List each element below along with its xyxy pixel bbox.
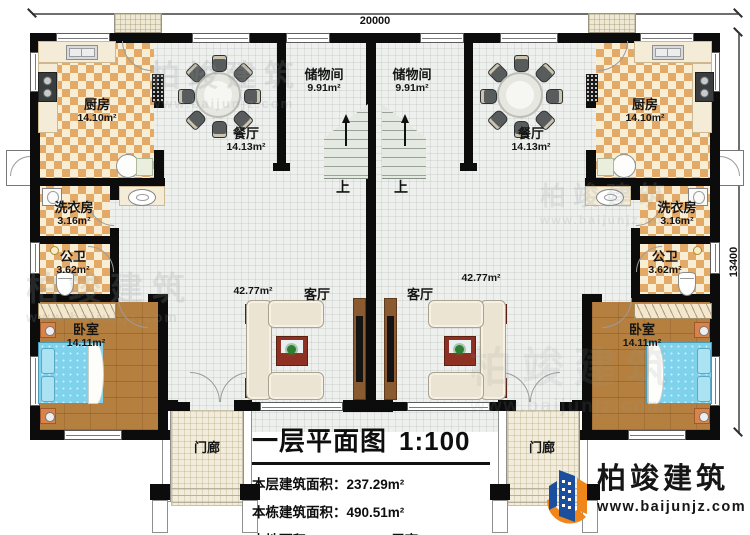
dining-table	[497, 72, 543, 118]
wall-bedroom-side-left	[158, 294, 168, 430]
wall-kitchen-bottom-right	[585, 178, 720, 186]
kitchen-appliance	[597, 158, 614, 176]
dimension-line-right	[738, 34, 740, 434]
ceiling-lamp	[693, 246, 702, 255]
kitchen-sink	[652, 45, 684, 60]
wall-bedroom-bottom-left	[30, 430, 64, 440]
nightstand	[694, 322, 710, 338]
wall-hall-left	[110, 186, 119, 200]
wall-bath-bedroom-right	[632, 294, 720, 302]
wall-center-base	[343, 400, 393, 412]
wall-bedroom-bottom-right	[580, 430, 628, 440]
stairs-up-arrow	[345, 118, 347, 146]
wall-bedroom-bottom-right	[686, 430, 720, 440]
room-label-bathroom-right: 公卫 3.62m²	[648, 250, 681, 276]
kitchen-table	[612, 154, 636, 178]
dining-table	[195, 72, 241, 118]
wall-kitchen-dining-right	[586, 150, 596, 186]
plant	[455, 345, 464, 354]
footprint-line: 占地面积：214.97m²层高：3.6m	[252, 529, 490, 535]
room-label-bedroom-left: 卧室 14.11m²	[67, 323, 106, 349]
window	[260, 402, 343, 411]
room-label-storage-left: 储物间 9.91m²	[304, 68, 343, 94]
dining-chair	[244, 89, 261, 104]
porch-column-right	[490, 484, 510, 500]
room-label-bedroom-right: 卧室 14.11m²	[623, 323, 662, 349]
pillow	[697, 376, 711, 402]
wall-kitchen-bottom-left	[30, 178, 165, 186]
dining-chair	[480, 89, 497, 104]
wall-bedroom-side-right	[582, 294, 592, 430]
sofa	[428, 300, 484, 328]
wall-laundry-bath-left	[30, 236, 110, 244]
porch-pillar-right	[492, 500, 508, 533]
planter-box-left	[114, 13, 162, 33]
wash-basin	[128, 189, 156, 206]
blanket	[648, 344, 664, 404]
wall-laundry-bath-right	[640, 236, 720, 244]
wall-hall-right	[631, 186, 640, 200]
kitchen-sink	[66, 45, 98, 60]
stove	[695, 72, 714, 102]
tv	[356, 316, 363, 382]
company-logo: 柏竣建筑 www.baijunjz.com	[545, 464, 746, 528]
dining-chair	[546, 89, 563, 104]
stove	[38, 72, 57, 102]
plan-title-text: 一层平面图	[252, 421, 387, 458]
blanket	[88, 344, 104, 404]
nightstand	[40, 322, 56, 338]
wall-living-front-right	[393, 402, 407, 411]
dining-chair	[212, 55, 227, 72]
room-label-bathroom-left: 公卫 3.62m²	[56, 250, 89, 276]
nightstand	[40, 408, 56, 424]
room-label-living-right: 客厅	[407, 288, 433, 303]
room-label-laundry-right: 洗衣房 3.16m²	[657, 201, 696, 227]
plant	[287, 345, 296, 354]
dimension-width-value: 20000	[360, 15, 391, 27]
dining-chair	[178, 89, 195, 104]
room-label-laundry-left: 洗衣房 3.16m²	[54, 201, 93, 227]
sofa	[268, 300, 324, 328]
kitchen-appliance	[136, 158, 153, 176]
building-area-line: 本栋建筑面积：490.51m²	[252, 501, 490, 521]
porch-steps-left	[171, 488, 243, 506]
room-area-living-right: 42.77m²	[461, 272, 500, 284]
porch-column-left	[150, 484, 170, 500]
wardrobe	[634, 303, 712, 319]
wall-storage-left-cap	[273, 163, 290, 171]
wall-party-center	[366, 33, 376, 402]
window	[30, 242, 40, 274]
wall-bath-bedroom-left	[30, 294, 118, 302]
room-label-kitchen-left: 厨房 14.10m²	[77, 98, 116, 124]
stairs-up-label: 上	[336, 177, 350, 197]
fridge	[586, 74, 598, 102]
wall-storage-left	[277, 41, 286, 163]
window	[286, 33, 330, 43]
plan-scale: 1:100	[399, 426, 471, 457]
dining-chair	[212, 121, 227, 138]
window	[628, 430, 686, 440]
floor-area-line: 本层建筑面积：237.29m²	[252, 473, 490, 493]
tv	[387, 316, 394, 382]
porch-pillar-left	[152, 500, 168, 533]
wall-storage-right-cap	[460, 163, 477, 171]
stairs-up-arrow	[404, 118, 406, 146]
floor-plan-canvas: 20000 13400	[0, 0, 750, 535]
window	[420, 33, 464, 43]
nightstand	[694, 408, 710, 424]
pillow	[41, 376, 55, 402]
dimension-height-value: 13400	[728, 247, 740, 278]
room-label-living-left: 客厅	[304, 288, 330, 303]
wall-kitchen-dining-left	[154, 150, 164, 186]
room-label-kitchen-right: 厨房 14.10m²	[625, 98, 664, 124]
company-logo-icon	[545, 464, 591, 528]
planter-box-right	[588, 13, 636, 33]
pillow	[697, 348, 711, 374]
company-name: 柏竣建筑	[597, 464, 746, 496]
room-label-dining-right: 餐厅 14.13m²	[511, 127, 550, 153]
title-block: 一层平面图 1:100 本层建筑面积：237.29m² 本栋建筑面积：490.5…	[252, 421, 490, 535]
dining-chair	[514, 55, 529, 72]
window	[500, 33, 558, 43]
pillow	[41, 348, 55, 374]
company-website: www.baijunjz.com	[597, 499, 746, 515]
window	[192, 33, 250, 43]
window	[407, 402, 490, 411]
room-label-dining-left: 餐厅 14.13m²	[226, 127, 265, 153]
room-label-storage-right: 储物间 9.91m²	[392, 68, 431, 94]
room-label-porch-left: 门廊	[194, 441, 220, 456]
room-label-porch-right: 门廊	[529, 441, 555, 456]
sofa	[428, 372, 484, 400]
wardrobe	[38, 303, 116, 319]
fridge	[152, 74, 164, 102]
wall-bedroom-bottom-left	[122, 430, 170, 440]
wash-basin	[596, 189, 624, 206]
plan-title: 一层平面图 1:100	[252, 421, 490, 465]
sofa	[268, 372, 324, 400]
window	[64, 430, 122, 440]
window	[710, 242, 720, 274]
room-area-living-left: 42.77m²	[233, 285, 272, 297]
stairs-up-label: 上	[394, 177, 408, 197]
